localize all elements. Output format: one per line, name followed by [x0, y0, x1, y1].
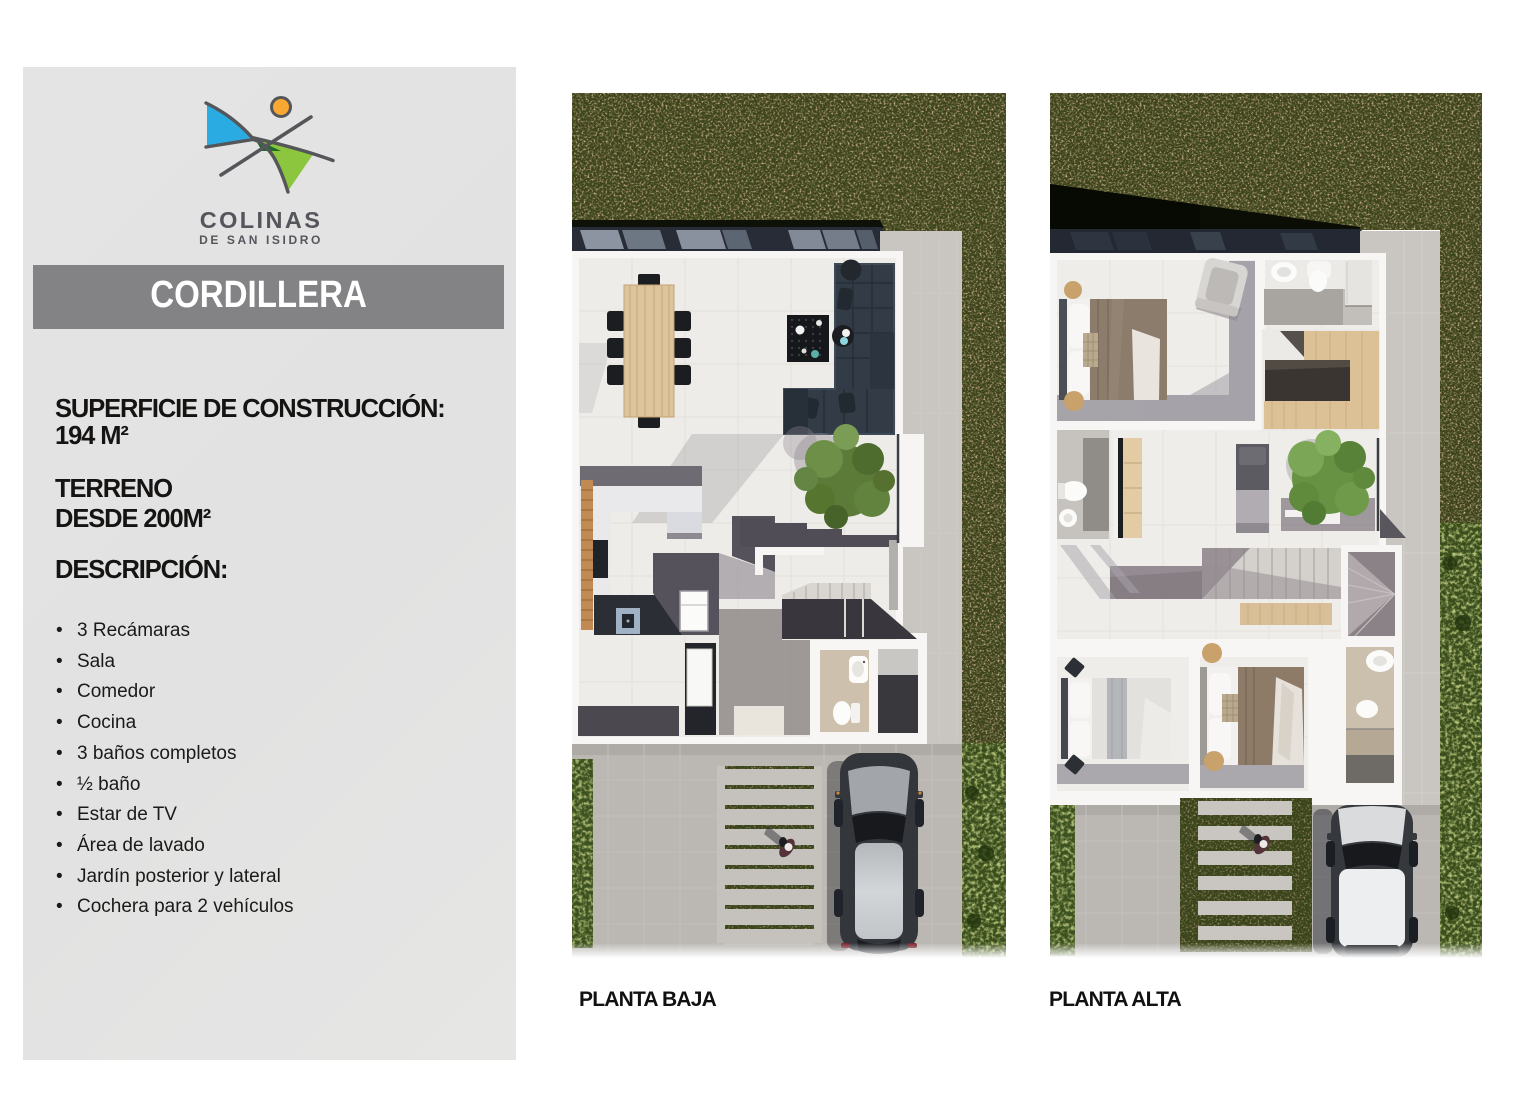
svg-text:DE SAN ISIDRO: DE SAN ISIDRO	[199, 233, 323, 247]
svg-text:COLINAS: COLINAS	[200, 207, 323, 233]
